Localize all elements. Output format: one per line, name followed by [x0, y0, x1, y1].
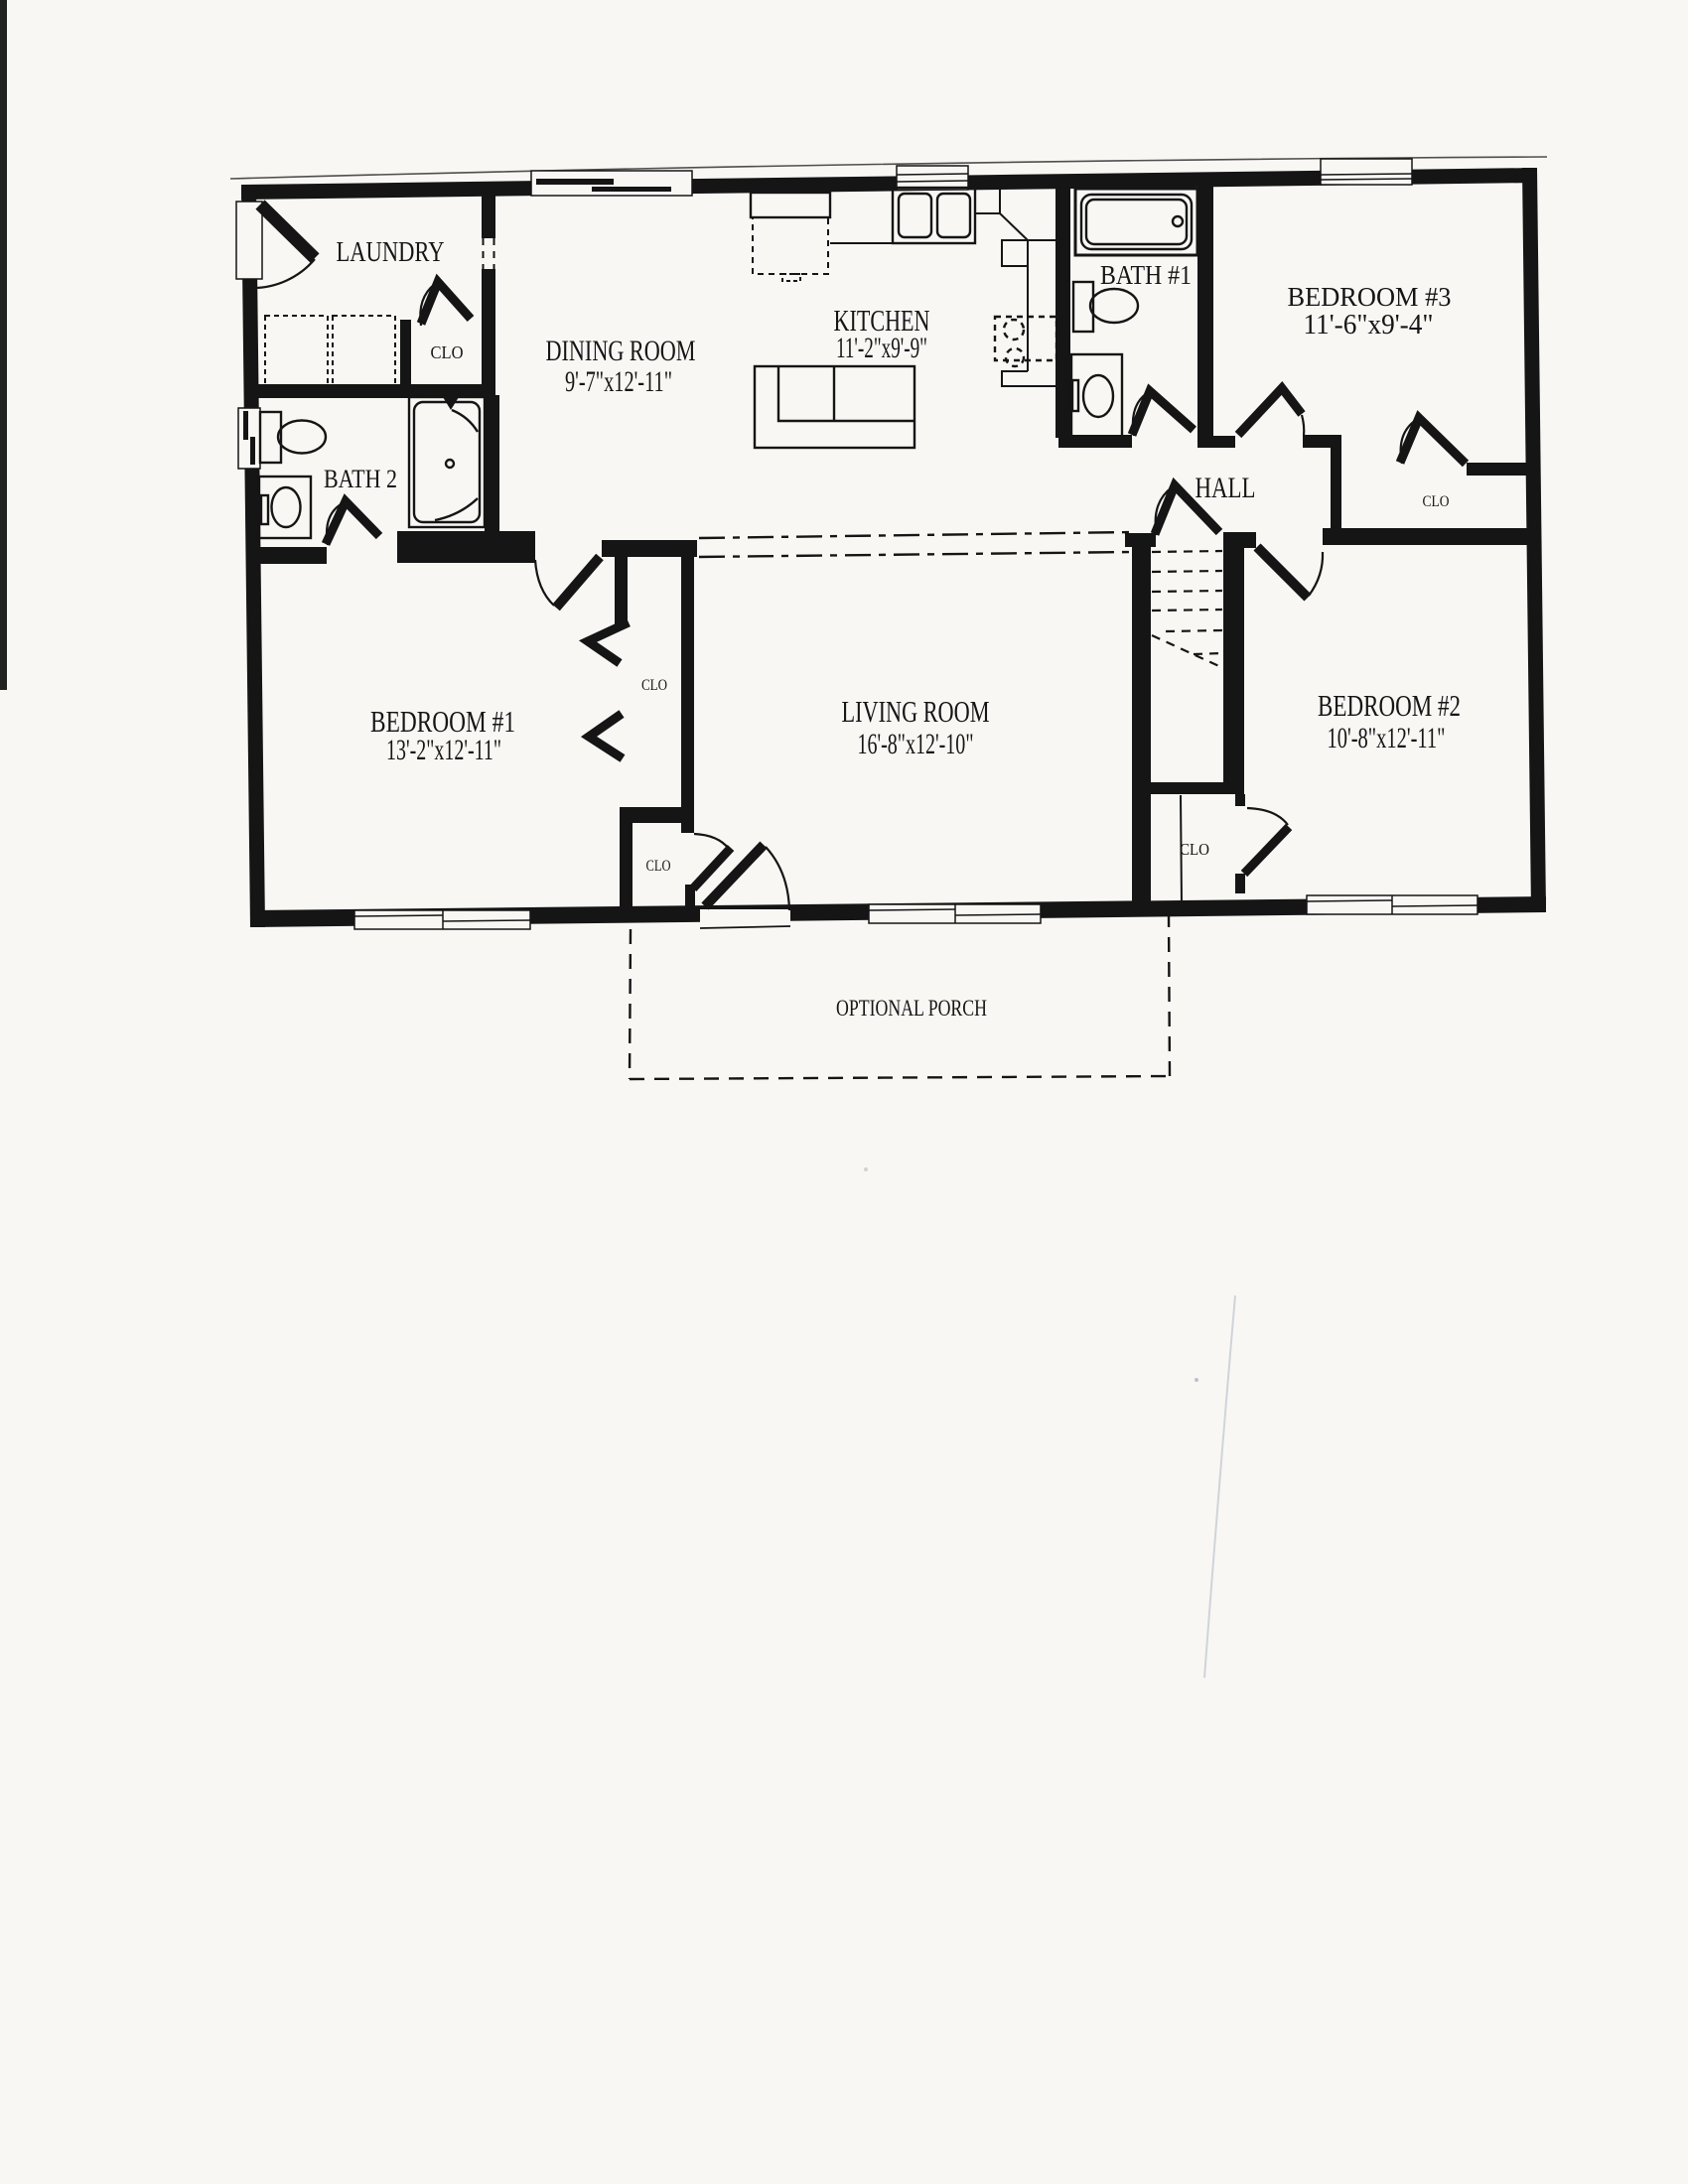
svg-text:10'-8"x12'-11": 10'-8"x12'-11"	[1328, 722, 1446, 754]
svg-text:13'-2"x12'-11": 13'-2"x12'-11"	[386, 734, 501, 766]
svg-text:LAUNDRY: LAUNDRY	[337, 236, 445, 268]
svg-text:9'-7"x12'-11": 9'-7"x12'-11"	[565, 365, 672, 398]
svg-text:CLO: CLO	[641, 677, 667, 694]
svg-text:BEDROOM #2: BEDROOM #2	[1318, 688, 1461, 723]
svg-text:11'-2"x9'-9": 11'-2"x9'-9"	[836, 332, 927, 364]
svg-text:16'-8"x12'-10": 16'-8"x12'-10"	[858, 728, 974, 760]
svg-text:CLO: CLO	[431, 342, 464, 362]
svg-text:11'-6"x9'-4": 11'-6"x9'-4"	[1304, 309, 1434, 341]
svg-text:CLO: CLO	[1180, 840, 1209, 859]
svg-text:BATH #1: BATH #1	[1100, 260, 1192, 290]
svg-text:LIVING ROOM: LIVING ROOM	[842, 694, 990, 729]
svg-text:DINING ROOM: DINING ROOM	[546, 335, 696, 367]
svg-text:CLO: CLO	[646, 858, 671, 875]
svg-text:BATH 2: BATH 2	[324, 465, 397, 493]
svg-text:OPTIONAL PORCH: OPTIONAL PORCH	[836, 996, 987, 1021]
svg-text:HALL: HALL	[1196, 472, 1256, 504]
svg-text:BEDROOM #3: BEDROOM #3	[1288, 282, 1452, 312]
svg-text:CLO: CLO	[1423, 493, 1450, 510]
